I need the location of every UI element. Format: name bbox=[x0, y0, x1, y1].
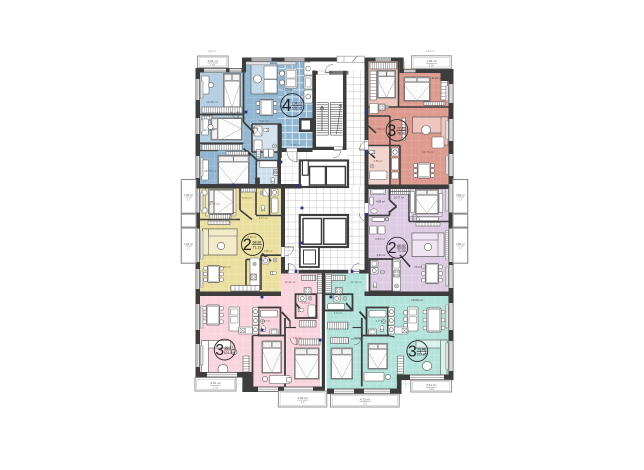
svg-text:14.77 m²: 14.77 m² bbox=[208, 202, 220, 206]
svg-text:1.94 m²: 1.94 m² bbox=[426, 49, 435, 53]
svg-text:4.85 m²: 4.85 m² bbox=[376, 200, 385, 204]
svg-text:10.77 m²: 10.77 m² bbox=[394, 196, 404, 200]
svg-text:4.71 m²: 4.71 m² bbox=[334, 312, 343, 315]
svg-text:3: 3 bbox=[387, 122, 396, 140]
svg-text:19.20 m²: 19.20 m² bbox=[219, 265, 231, 269]
svg-text:102.99: 102.99 bbox=[416, 352, 426, 356]
svg-text:99.58: 99.58 bbox=[417, 347, 426, 351]
svg-text:4.31 m²: 4.31 m² bbox=[377, 253, 386, 257]
svg-text:19.07 m²: 19.07 m² bbox=[414, 265, 426, 269]
svg-text:4.73 m²: 4.73 m² bbox=[360, 398, 370, 402]
svg-text:105.15: 105.15 bbox=[292, 106, 302, 110]
svg-text:71.33: 71.33 bbox=[397, 249, 406, 253]
svg-text:4.77 m²: 4.77 m² bbox=[376, 320, 385, 323]
svg-text:101.09: 101.09 bbox=[224, 351, 234, 355]
svg-text:1.57: 1.57 bbox=[210, 63, 216, 67]
svg-text:2: 2 bbox=[243, 236, 252, 254]
svg-text:6.84 m²: 6.84 m² bbox=[375, 237, 385, 241]
svg-text:1.16: 1.16 bbox=[429, 387, 435, 391]
svg-text:1.7: 1.7 bbox=[459, 248, 463, 251]
svg-text:3.61 m²: 3.61 m² bbox=[426, 383, 436, 387]
svg-text:4: 4 bbox=[282, 95, 292, 115]
svg-text:104.22: 104.22 bbox=[292, 101, 302, 105]
svg-text:1.56 m²: 1.56 m² bbox=[456, 193, 465, 197]
svg-text:2: 2 bbox=[388, 240, 397, 257]
svg-text:11.21 m²: 11.21 m² bbox=[432, 76, 443, 80]
svg-text:+10 m²: +10 m² bbox=[283, 88, 293, 92]
svg-text:2.0: 2.0 bbox=[301, 400, 305, 404]
svg-text:77.83: 77.83 bbox=[397, 126, 406, 130]
svg-text:7.79 m²: 7.79 m² bbox=[291, 143, 301, 147]
svg-text:4.56 m²: 4.56 m² bbox=[374, 159, 383, 163]
svg-text:3.61 m²: 3.61 m² bbox=[210, 381, 220, 385]
svg-text:1.7: 1.7 bbox=[187, 248, 191, 251]
svg-text:1.16: 1.16 bbox=[213, 385, 219, 389]
svg-text:4.77 m²: 4.77 m² bbox=[262, 320, 271, 323]
svg-text:11.70 m²: 11.70 m² bbox=[203, 128, 215, 132]
svg-text:1.66 m²: 1.66 m² bbox=[426, 59, 436, 63]
svg-text:12.11 m²: 12.11 m² bbox=[285, 280, 296, 284]
svg-text:4.71 m²: 4.71 m² bbox=[302, 302, 311, 305]
svg-text:13.64 m²: 13.64 m² bbox=[411, 298, 423, 302]
svg-text:4.77 m²: 4.77 m² bbox=[259, 216, 268, 220]
svg-text:4.91 m²: 4.91 m² bbox=[208, 59, 218, 63]
svg-text:1.91 m²: 1.91 m² bbox=[208, 49, 217, 53]
svg-text:1.56 m²: 1.56 m² bbox=[184, 193, 193, 197]
svg-text:1.66 m²: 1.66 m² bbox=[298, 396, 308, 400]
svg-text:68.88: 68.88 bbox=[253, 241, 262, 245]
svg-text:78.20: 78.20 bbox=[397, 131, 406, 135]
svg-text:71.13: 71.13 bbox=[253, 246, 262, 250]
svg-text:2.0: 2.0 bbox=[363, 402, 367, 406]
svg-text:16.75 m²: 16.75 m² bbox=[204, 169, 216, 173]
svg-text:1.7: 1.7 bbox=[459, 199, 463, 202]
svg-text:99.57: 99.57 bbox=[225, 346, 234, 350]
svg-text:14.59 m²: 14.59 m² bbox=[206, 100, 218, 104]
svg-text:4.67 m²: 4.67 m² bbox=[259, 119, 269, 123]
svg-text:1.56 m²: 1.56 m² bbox=[184, 242, 193, 246]
svg-text:8.71 m²: 8.71 m² bbox=[242, 196, 252, 200]
svg-text:7.06 m²: 7.06 m² bbox=[375, 127, 385, 131]
svg-text:4.35 m²: 4.35 m² bbox=[264, 249, 273, 253]
svg-text:16.76 m²: 16.76 m² bbox=[422, 150, 434, 154]
svg-text:1.56 m²: 1.56 m² bbox=[456, 242, 465, 246]
svg-text:1.7: 1.7 bbox=[187, 199, 191, 202]
svg-text:68.80: 68.80 bbox=[397, 244, 406, 248]
svg-text:1.94: 1.94 bbox=[429, 64, 435, 68]
svg-text:12.10 m²: 12.10 m² bbox=[350, 280, 361, 284]
